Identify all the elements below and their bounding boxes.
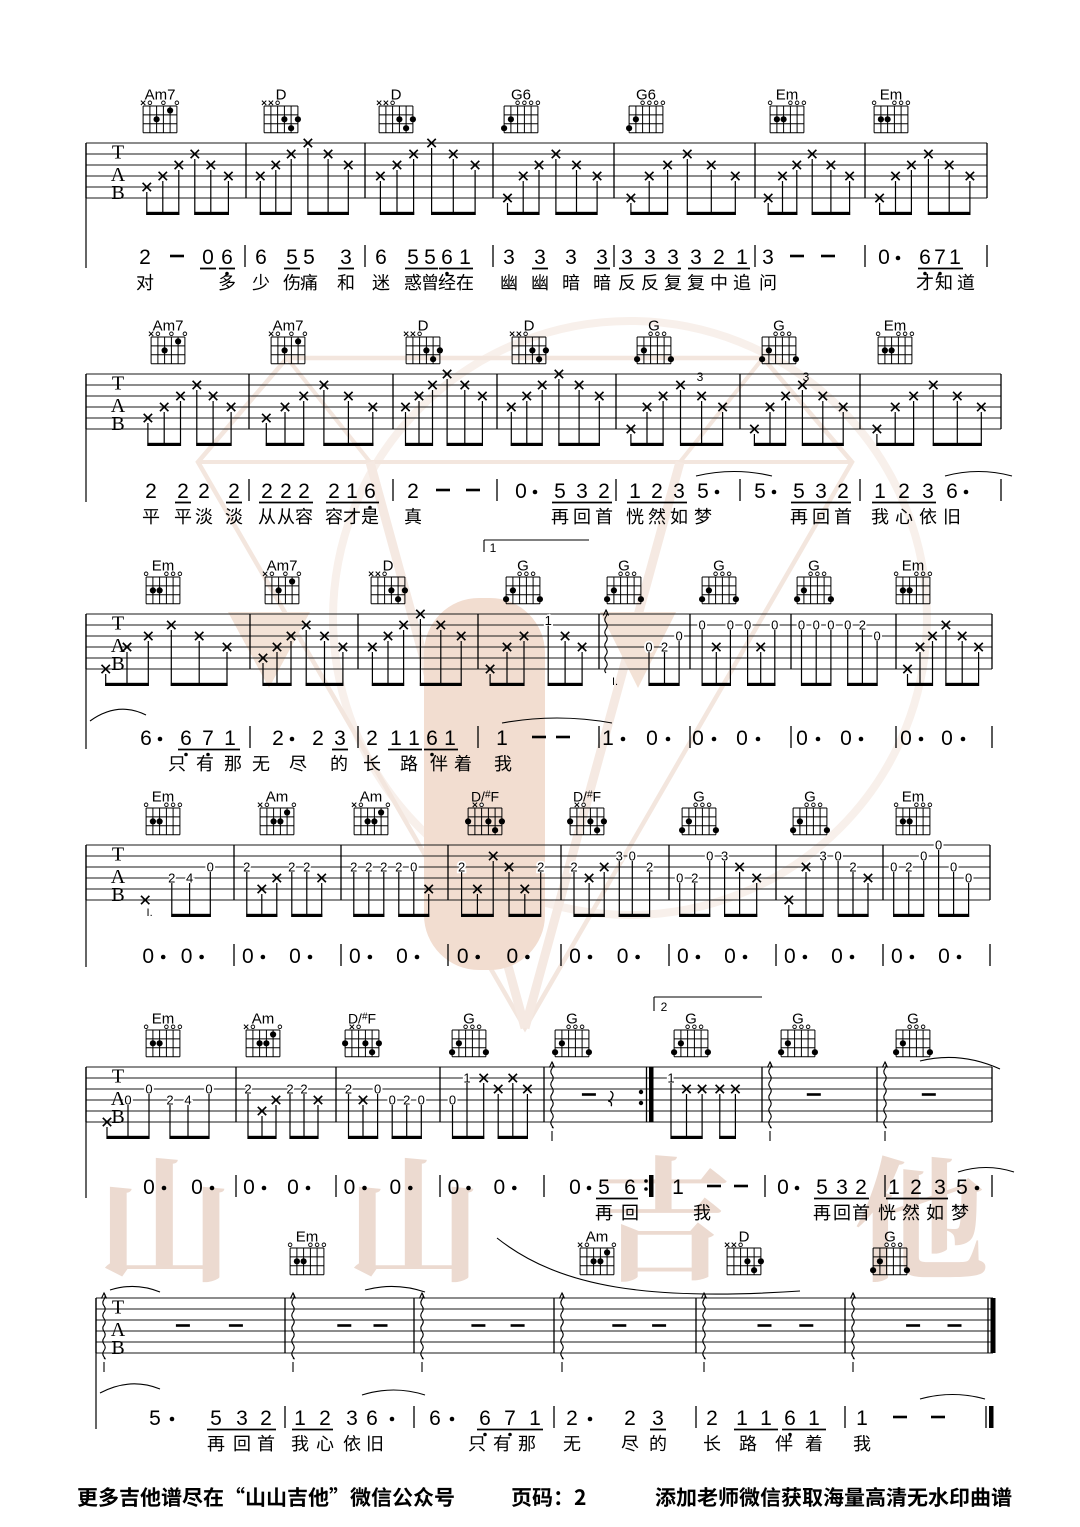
svg-text:2: 2: [145, 480, 157, 503]
svg-text:3: 3: [340, 246, 352, 269]
svg-text:2: 2: [319, 1407, 331, 1430]
svg-text:T: T: [112, 613, 124, 635]
svg-text:7: 7: [202, 727, 214, 750]
svg-text:5: 5: [424, 246, 436, 269]
svg-text:3: 3: [697, 370, 704, 384]
svg-text:3: 3: [644, 246, 656, 269]
svg-text:Am: Am: [586, 1229, 609, 1246]
svg-text:0: 0: [900, 727, 912, 750]
svg-text:0: 0: [891, 945, 903, 968]
svg-text:Em: Em: [152, 789, 175, 806]
svg-text:3: 3: [667, 246, 679, 269]
svg-text:Em: Em: [152, 558, 175, 575]
svg-text:2: 2: [898, 480, 910, 503]
svg-text:5: 5: [598, 1176, 610, 1199]
svg-text:0: 0: [692, 727, 704, 750]
svg-text:G6: G6: [511, 87, 531, 104]
svg-text:5: 5: [816, 1176, 828, 1199]
svg-text:5: 5: [149, 1407, 161, 1430]
svg-text:6: 6: [426, 727, 438, 750]
svg-text:2: 2: [713, 246, 725, 269]
svg-text:7: 7: [934, 246, 946, 269]
svg-text:3: 3: [652, 1407, 664, 1430]
svg-text:1: 1: [496, 727, 508, 750]
svg-text:6: 6: [375, 246, 387, 269]
svg-text:2: 2: [298, 480, 310, 503]
svg-text:3: 3: [762, 246, 774, 269]
svg-text:1: 1: [949, 246, 961, 269]
svg-text:0: 0: [181, 945, 193, 968]
svg-text:2: 2: [566, 1407, 578, 1430]
svg-text:Em: Em: [880, 87, 903, 104]
svg-text:2: 2: [177, 480, 189, 503]
svg-text:I.: I.: [147, 907, 153, 919]
svg-text:0: 0: [784, 945, 796, 968]
svg-text:0: 0: [724, 945, 736, 968]
svg-text:B: B: [111, 413, 124, 435]
svg-text:1: 1: [736, 1407, 748, 1430]
svg-text:3: 3: [690, 246, 702, 269]
svg-text:3: 3: [576, 480, 588, 503]
svg-text:0: 0: [646, 727, 658, 750]
svg-text:3: 3: [565, 246, 577, 269]
svg-text:Am: Am: [252, 1011, 275, 1028]
svg-text:2: 2: [328, 480, 340, 503]
svg-text:B: B: [111, 653, 124, 675]
svg-text:0: 0: [840, 727, 852, 750]
svg-text:1: 1: [602, 727, 614, 750]
svg-text:6: 6: [140, 727, 152, 750]
svg-text:0: 0: [396, 945, 408, 968]
svg-text:3: 3: [236, 1407, 248, 1430]
svg-text:5: 5: [956, 1176, 968, 1199]
svg-text:1: 1: [294, 1407, 306, 1430]
svg-text:Am: Am: [266, 789, 289, 806]
svg-text:0: 0: [457, 945, 469, 968]
svg-text:3: 3: [621, 246, 633, 269]
svg-text:6: 6: [180, 727, 192, 750]
svg-text:2: 2: [366, 727, 378, 750]
svg-text:5: 5: [286, 246, 298, 269]
svg-text:1: 1: [856, 1407, 868, 1430]
svg-text:2: 2: [598, 480, 610, 503]
svg-text:Am: Am: [360, 789, 383, 806]
svg-text:1: 1: [672, 1176, 684, 1199]
svg-text:0: 0: [569, 945, 581, 968]
svg-text:5: 5: [554, 480, 566, 503]
svg-text:3: 3: [815, 480, 827, 503]
svg-text:6: 6: [255, 246, 267, 269]
svg-text:3: 3: [346, 1407, 358, 1430]
svg-text:0: 0: [289, 945, 301, 968]
svg-text:0: 0: [941, 727, 953, 750]
svg-text:2: 2: [228, 480, 240, 503]
svg-text:T: T: [112, 373, 124, 395]
svg-text:6: 6: [479, 1407, 491, 1430]
svg-text:0: 0: [448, 1176, 460, 1199]
svg-text:0: 0: [242, 945, 254, 968]
svg-text:2: 2: [312, 727, 324, 750]
svg-text:0: 0: [143, 1176, 155, 1199]
svg-text:2: 2: [261, 480, 273, 503]
svg-text:6: 6: [429, 1407, 441, 1430]
svg-text:6: 6: [366, 1407, 378, 1430]
svg-text:2: 2: [624, 1407, 636, 1430]
svg-text:0: 0: [677, 945, 689, 968]
svg-text:1: 1: [888, 1176, 900, 1199]
svg-text:0: 0: [507, 945, 519, 968]
svg-text:1: 1: [808, 1407, 820, 1430]
svg-text:2: 2: [407, 480, 419, 503]
svg-text:3: 3: [934, 1176, 946, 1199]
svg-text:B: B: [111, 884, 124, 906]
svg-text:B: B: [111, 182, 124, 204]
svg-text:0: 0: [493, 1176, 505, 1199]
svg-text:3: 3: [673, 480, 685, 503]
svg-text:7: 7: [504, 1407, 516, 1430]
svg-text:0: 0: [569, 1176, 581, 1199]
svg-text:2: 2: [910, 1176, 922, 1199]
svg-text:3: 3: [922, 480, 934, 503]
svg-text:1: 1: [874, 480, 886, 503]
svg-text:6: 6: [946, 480, 958, 503]
svg-text:0: 0: [796, 727, 808, 750]
svg-text:5: 5: [754, 480, 766, 503]
svg-text:0: 0: [878, 246, 890, 269]
svg-text:T: T: [112, 1297, 124, 1319]
svg-text:3: 3: [334, 727, 346, 750]
svg-text:0: 0: [515, 480, 527, 503]
svg-text:0: 0: [142, 945, 154, 968]
svg-text:1: 1: [224, 727, 236, 750]
svg-text:5: 5: [793, 480, 805, 503]
svg-text:Em: Em: [902, 789, 925, 806]
svg-text:2: 2: [198, 480, 210, 503]
svg-text:0: 0: [349, 945, 361, 968]
svg-text:0: 0: [617, 945, 629, 968]
svg-text:Em: Em: [296, 1229, 319, 1246]
svg-text:5: 5: [697, 480, 709, 503]
svg-text:1: 1: [408, 727, 420, 750]
svg-text:3: 3: [534, 246, 546, 269]
svg-text:0: 0: [736, 727, 748, 750]
svg-text:1: 1: [629, 480, 641, 503]
svg-text:B: B: [111, 1106, 124, 1128]
svg-text:0: 0: [938, 945, 950, 968]
svg-text:6: 6: [624, 1176, 636, 1199]
svg-text:2: 2: [260, 1407, 272, 1430]
svg-text:Em: Em: [902, 558, 925, 575]
svg-text:5: 5: [210, 1407, 222, 1430]
svg-text:5: 5: [303, 246, 315, 269]
svg-text:3: 3: [503, 246, 515, 269]
svg-text:2: 2: [139, 246, 151, 269]
svg-text:1: 1: [736, 246, 748, 269]
svg-text:2: 2: [280, 480, 292, 503]
svg-text:2: 2: [272, 727, 284, 750]
svg-text:0: 0: [831, 945, 843, 968]
svg-text:T: T: [112, 142, 124, 164]
svg-text:0: 0: [389, 1176, 401, 1199]
svg-text:2: 2: [661, 1000, 668, 1014]
svg-text:1: 1: [459, 246, 471, 269]
svg-text:6: 6: [364, 480, 376, 503]
svg-text:Em: Em: [152, 1011, 175, 1028]
svg-text:3: 3: [836, 1176, 848, 1199]
svg-text:T: T: [112, 844, 124, 866]
svg-text:2: 2: [837, 480, 849, 503]
svg-text:6: 6: [784, 1407, 796, 1430]
svg-text:1: 1: [346, 480, 358, 503]
svg-text:Em: Em: [776, 87, 799, 104]
svg-text:6: 6: [441, 246, 453, 269]
svg-text:1: 1: [444, 727, 456, 750]
svg-text:0: 0: [344, 1176, 356, 1199]
svg-text:6: 6: [919, 246, 931, 269]
svg-text:I.: I.: [612, 676, 618, 688]
svg-text:6: 6: [221, 246, 233, 269]
svg-text:3: 3: [596, 246, 608, 269]
svg-text:1: 1: [760, 1407, 772, 1430]
svg-text:0: 0: [287, 1176, 299, 1199]
svg-text:0: 0: [777, 1176, 789, 1199]
svg-text:0: 0: [243, 1176, 255, 1199]
svg-text:1: 1: [529, 1407, 541, 1430]
svg-text:Em: Em: [884, 318, 907, 335]
svg-text:2: 2: [651, 480, 663, 503]
svg-text:2: 2: [855, 1176, 867, 1199]
svg-text:T: T: [112, 1066, 124, 1088]
svg-text:2: 2: [706, 1407, 718, 1430]
svg-text:5: 5: [407, 246, 419, 269]
svg-text:0: 0: [191, 1176, 203, 1199]
svg-text:B: B: [111, 1337, 124, 1359]
svg-text:G6: G6: [636, 87, 656, 104]
svg-text:0: 0: [202, 246, 214, 269]
svg-text:3: 3: [803, 370, 810, 384]
svg-text:1: 1: [390, 727, 402, 750]
svg-text:1: 1: [490, 541, 497, 555]
